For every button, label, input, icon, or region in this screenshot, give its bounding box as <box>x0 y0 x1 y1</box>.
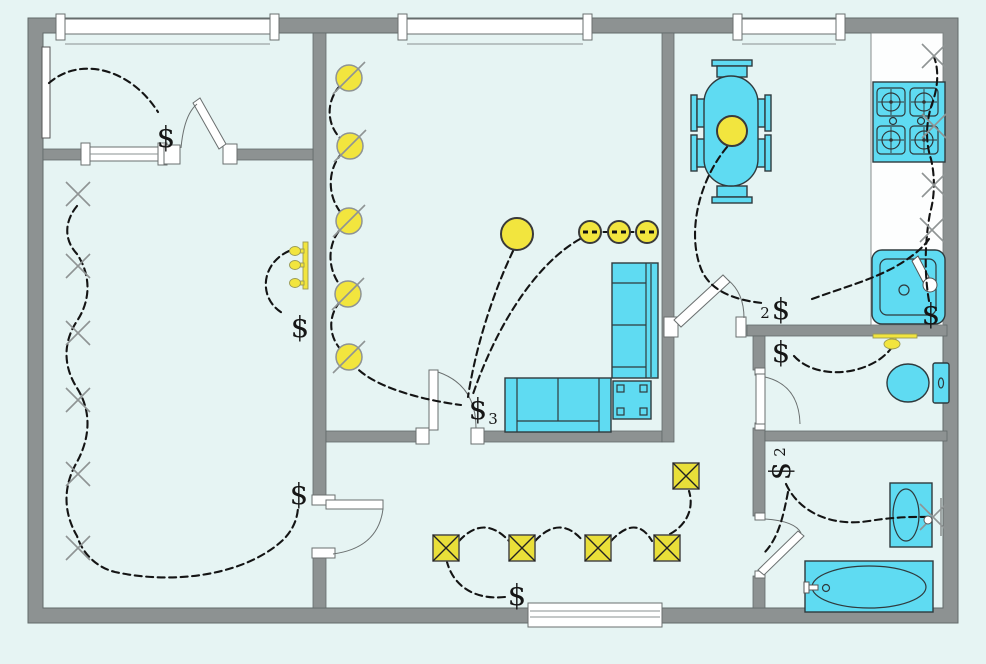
pendant-light-dining <box>717 116 747 146</box>
faucet-knob <box>923 278 937 292</box>
wall-living-bottom-a <box>326 431 417 442</box>
switch-living-room: $ <box>469 392 487 426</box>
switch-kitchen: $ <box>922 297 940 331</box>
bathtub <box>804 561 933 612</box>
switch-wc: $ <box>772 335 790 369</box>
pendant-light-living <box>501 218 533 250</box>
wall-bath-left <box>753 576 765 608</box>
wall-living-dining-divider <box>662 33 674 442</box>
coffee-table <box>613 381 651 419</box>
chair <box>765 95 771 131</box>
sconce-three-bulb <box>290 242 309 289</box>
switch-left-room-lamp: $ <box>291 310 309 344</box>
downlight <box>579 221 601 243</box>
switch-hall: $ <box>508 578 526 612</box>
bathroom-sink <box>890 483 932 547</box>
tub-faucet <box>809 585 818 590</box>
switch-dining-room-sub: 2 <box>760 304 770 322</box>
floor-plan-canvas: $ $ $ $ 3 2 $ $ $ $ 2 $ <box>0 0 986 664</box>
toilet <box>887 363 949 403</box>
switch-left-room-lights: $ <box>290 477 308 511</box>
chair <box>712 197 752 203</box>
chair <box>691 95 697 131</box>
switch-bathroom: $ <box>763 462 797 480</box>
entry-door-threshold <box>528 603 662 627</box>
outlet <box>433 535 459 561</box>
chair <box>765 135 771 171</box>
wall-left-divider-upper <box>313 33 326 497</box>
downlight-row <box>579 221 658 243</box>
wall-topleft-room-a <box>43 149 85 160</box>
downlight <box>636 221 658 243</box>
radiator <box>42 47 50 138</box>
outlet <box>509 535 535 561</box>
chair <box>691 135 697 171</box>
electrical-floor-plan: $ $ $ $ 3 2 $ $ $ $ 2 $ <box>0 0 986 664</box>
tub-faucet <box>804 582 809 593</box>
wall-left-divider-lower <box>313 557 326 608</box>
switch-dining-room: $ <box>772 292 790 326</box>
chair <box>712 60 752 66</box>
switch-entry-room: $ <box>157 120 175 154</box>
wall-topleft-room-c <box>225 149 313 160</box>
outlet <box>654 535 680 561</box>
downlight <box>608 221 630 243</box>
chair <box>717 186 747 197</box>
sofa-vertical <box>612 263 658 378</box>
wall-wc-left-a <box>753 336 765 370</box>
sofa-two-seat <box>505 378 611 432</box>
wall-wc-bath-divider <box>765 431 947 441</box>
switch-bathroom-sub: 2 <box>771 447 789 457</box>
switch-living-room-sub: 3 <box>488 410 498 428</box>
outlet <box>585 535 611 561</box>
outlet <box>673 463 699 489</box>
